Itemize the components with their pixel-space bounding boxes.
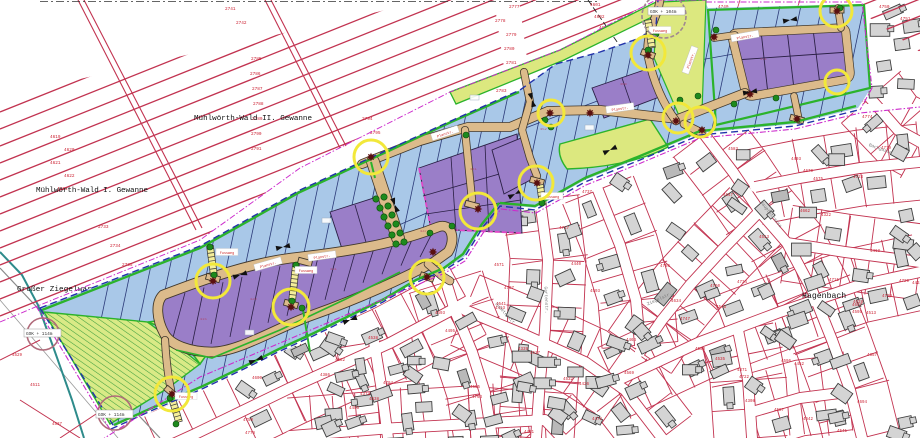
svg-text:4571: 4571 xyxy=(494,264,505,268)
svg-text:2781: 2781 xyxy=(506,61,517,66)
svg-text:4634: 4634 xyxy=(671,300,682,304)
svg-text:4587: 4587 xyxy=(774,409,785,413)
svg-text:4455: 4455 xyxy=(349,407,360,411)
svg-text:Mühlwörth-Wald I. Gewanne: Mühlwörth-Wald I. Gewanne xyxy=(36,187,148,195)
svg-text:4339: 4339 xyxy=(518,348,529,352)
svg-text:4569: 4569 xyxy=(624,372,635,376)
svg-text:4495: 4495 xyxy=(445,330,456,334)
svg-text:415: 415 xyxy=(200,318,208,322)
svg-text:4503: 4503 xyxy=(695,348,706,352)
svg-text:4717: 4717 xyxy=(559,227,570,231)
svg-text:4538: 4538 xyxy=(368,337,379,341)
svg-text:2780: 2780 xyxy=(504,47,515,52)
svg-text:2742: 2742 xyxy=(236,21,247,26)
svg-text:2734: 2734 xyxy=(110,244,121,249)
svg-text:Hagenbach: Hagenbach xyxy=(802,291,846,301)
svg-text:4426: 4426 xyxy=(579,383,590,387)
svg-text:4440: 4440 xyxy=(571,263,582,267)
svg-text:2778: 2778 xyxy=(495,19,506,24)
svg-text:2787: 2787 xyxy=(252,87,263,92)
svg-text:GOK + 114m: GOK + 114m xyxy=(98,413,125,418)
svg-text:4756: 4756 xyxy=(660,265,671,269)
svg-text:GOK + 104m: GOK + 104m xyxy=(650,10,677,15)
svg-text:4386: 4386 xyxy=(320,374,331,378)
svg-text:4308: 4308 xyxy=(745,400,756,404)
svg-text:4511: 4511 xyxy=(30,384,41,388)
svg-text:4797: 4797 xyxy=(504,287,515,291)
svg-text:4682: 4682 xyxy=(335,359,346,363)
svg-text:4729: 4729 xyxy=(899,280,910,284)
svg-text:Fussweg: Fussweg xyxy=(220,252,234,256)
svg-text:2735: 2735 xyxy=(122,263,133,268)
svg-text:Fussweg: Fussweg xyxy=(299,270,313,274)
svg-text:4596: 4596 xyxy=(781,360,792,364)
svg-text:4493: 4493 xyxy=(791,158,802,162)
svg-text:Gartenstr.: Gartenstr. xyxy=(543,286,550,313)
svg-text:4424: 4424 xyxy=(912,282,920,286)
svg-text:Fussweg: Fussweg xyxy=(179,396,193,400)
svg-text:4622: 4622 xyxy=(64,174,75,179)
svg-text:4601: 4601 xyxy=(590,3,601,8)
svg-text:420: 420 xyxy=(250,298,258,302)
svg-text:4357: 4357 xyxy=(867,354,878,358)
svg-text:4729: 4729 xyxy=(882,295,893,299)
svg-text:2785: 2785 xyxy=(251,57,262,62)
svg-text:4750: 4750 xyxy=(879,5,890,10)
svg-text:4628: 4628 xyxy=(853,301,864,305)
svg-text:4595: 4595 xyxy=(852,311,863,315)
svg-text:441: 441 xyxy=(470,168,478,172)
svg-text:4535: 4535 xyxy=(715,358,726,362)
svg-text:4413: 4413 xyxy=(870,250,881,254)
svg-text:4575: 4575 xyxy=(813,178,824,182)
svg-text:4537: 4537 xyxy=(52,423,63,427)
svg-text:4600: 4600 xyxy=(252,377,263,381)
svg-text:4670: 4670 xyxy=(803,170,814,174)
svg-text:4545: 4545 xyxy=(716,306,727,310)
svg-text:4647: 4647 xyxy=(723,194,734,198)
svg-text:4517: 4517 xyxy=(530,352,541,356)
svg-text:Fussweg: Fussweg xyxy=(653,30,667,34)
svg-text:4760: 4760 xyxy=(710,285,721,289)
svg-text:GOK + 114m: GOK + 114m xyxy=(26,332,53,337)
svg-text:4621: 4621 xyxy=(50,161,61,166)
svg-text:4593: 4593 xyxy=(590,290,601,294)
svg-text:4593: 4593 xyxy=(435,312,446,316)
svg-text:4472: 4472 xyxy=(592,418,603,422)
svg-text:4764: 4764 xyxy=(472,396,483,400)
svg-text:4620: 4620 xyxy=(64,148,75,153)
svg-text:4778: 4778 xyxy=(245,432,256,436)
svg-text:437: 437 xyxy=(420,230,427,234)
svg-text:4722: 4722 xyxy=(739,376,750,380)
svg-text:4371: 4371 xyxy=(737,369,748,373)
svg-text:466: 466 xyxy=(620,83,628,87)
svg-text:4642: 4642 xyxy=(803,418,814,422)
svg-text:4724: 4724 xyxy=(853,176,864,180)
svg-text:2777: 2777 xyxy=(509,5,520,10)
svg-text:452: 452 xyxy=(540,128,548,132)
svg-text:4452: 4452 xyxy=(794,363,805,367)
svg-text:2779: 2779 xyxy=(506,33,517,38)
svg-text:4662: 4662 xyxy=(800,210,811,214)
svg-text:471: 471 xyxy=(760,58,768,62)
svg-text:2790: 2790 xyxy=(251,132,262,137)
svg-text:2788: 2788 xyxy=(253,102,264,107)
svg-text:2741: 2741 xyxy=(225,7,236,12)
svg-text:2786: 2786 xyxy=(250,72,261,77)
svg-text:4751: 4751 xyxy=(900,17,911,22)
svg-text:4464: 4464 xyxy=(626,339,637,343)
svg-text:4555: 4555 xyxy=(470,386,481,390)
svg-text:2791: 2791 xyxy=(251,147,262,152)
svg-text:4322: 4322 xyxy=(821,214,832,218)
svg-text:Mühlwörth-Wald II. Gewanne: Mühlwörth-Wald II. Gewanne xyxy=(194,115,312,123)
svg-text:4694: 4694 xyxy=(857,401,868,405)
svg-text:4734: 4734 xyxy=(737,281,748,285)
svg-text:4532: 4532 xyxy=(563,378,574,382)
svg-text:4737: 4737 xyxy=(582,191,593,195)
svg-text:4750: 4750 xyxy=(243,419,254,423)
svg-text:4491: 4491 xyxy=(524,431,535,435)
svg-text:4602: 4602 xyxy=(594,15,605,20)
svg-text:4583: 4583 xyxy=(728,148,739,152)
svg-text:4711: 4711 xyxy=(829,279,840,283)
svg-text:4794: 4794 xyxy=(383,382,394,386)
svg-text:4774: 4774 xyxy=(862,115,873,120)
svg-text:4373: 4373 xyxy=(360,393,371,397)
svg-text:4529: 4529 xyxy=(12,354,23,358)
svg-text:4747: 4747 xyxy=(680,318,691,322)
svg-text:431: 431 xyxy=(330,268,338,272)
svg-text:4541: 4541 xyxy=(837,430,848,434)
svg-text:4513: 4513 xyxy=(866,312,877,316)
svg-text:4619: 4619 xyxy=(50,135,61,140)
svg-text:2733: 2733 xyxy=(98,225,109,230)
svg-text:4513: 4513 xyxy=(759,236,770,240)
svg-text:2794: 2794 xyxy=(362,117,373,122)
svg-text:4638: 4638 xyxy=(369,398,380,402)
svg-text:2783: 2783 xyxy=(496,89,507,94)
